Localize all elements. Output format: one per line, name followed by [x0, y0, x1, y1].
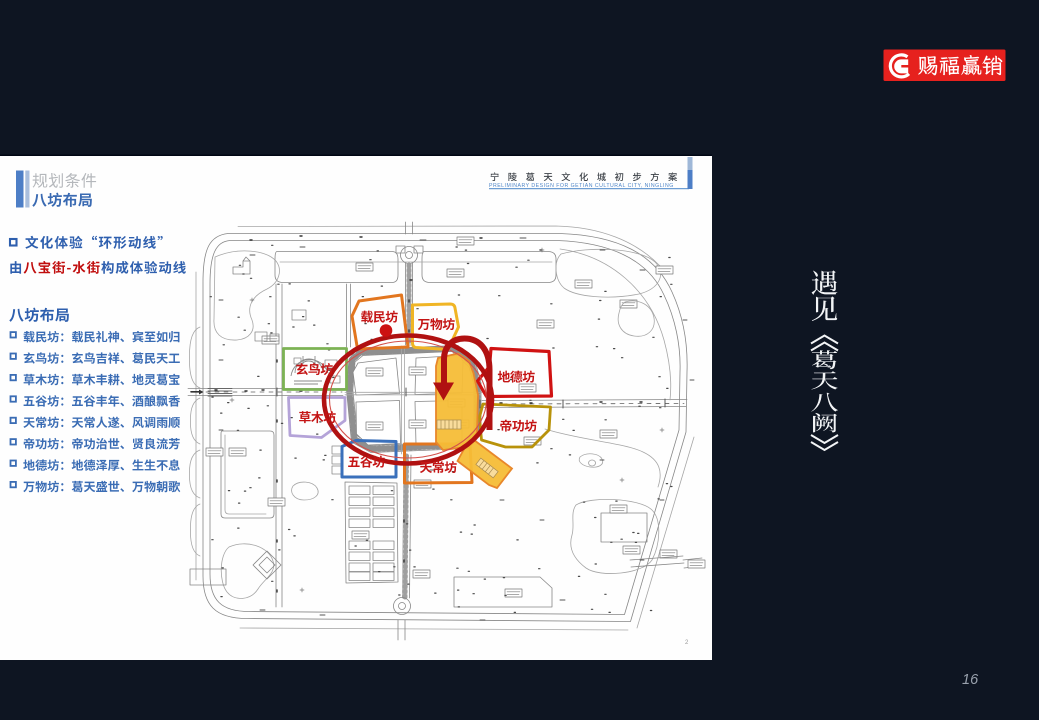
svg-text:16: 16 [962, 672, 979, 688]
svg-text:PRELIMINARY DESIGN FOR GETIAN: PRELIMINARY DESIGN FOR GETIAN CULTURAL C… [489, 183, 674, 189]
